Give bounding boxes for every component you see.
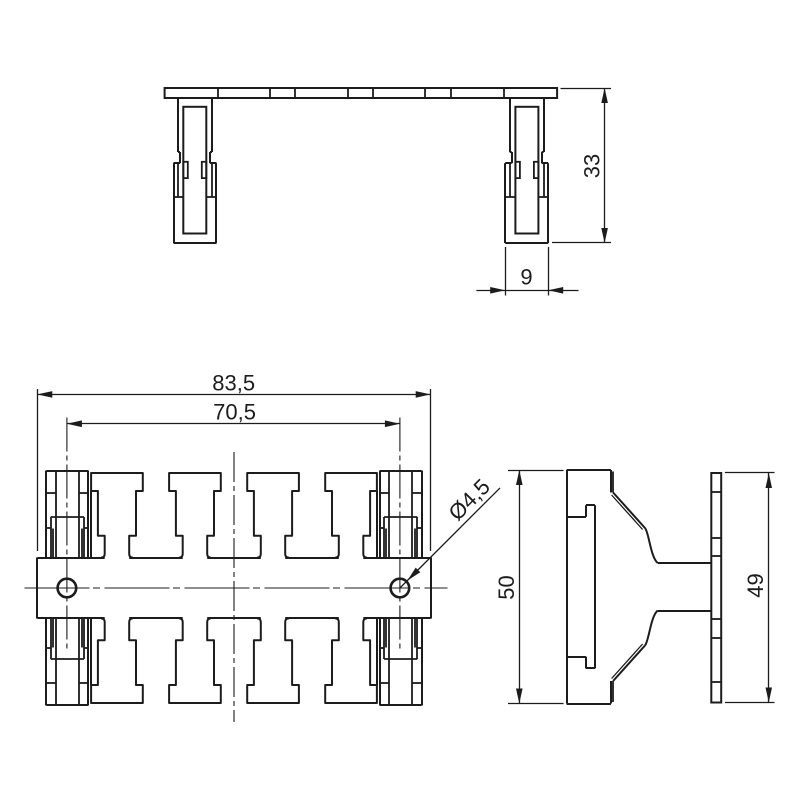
svg-text:49: 49 [743, 573, 768, 597]
svg-text:9: 9 [520, 265, 532, 290]
svg-text:50: 50 [494, 575, 519, 599]
svg-text:33: 33 [580, 154, 605, 178]
svg-text:83,5: 83,5 [212, 371, 255, 396]
svg-text:70,5: 70,5 [213, 400, 256, 425]
